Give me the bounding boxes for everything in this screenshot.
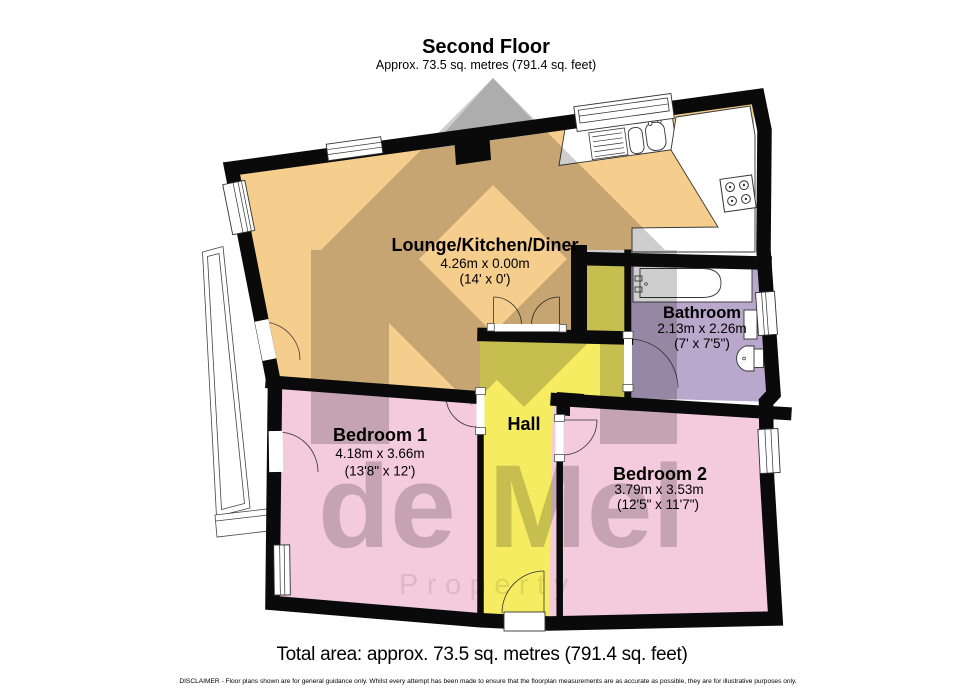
svg-text:Bedroom 2: Bedroom 2: [613, 464, 707, 484]
svg-text:4.26m x 0.00m: 4.26m x 0.00m: [440, 256, 529, 271]
svg-text:Hall: Hall: [507, 414, 540, 434]
svg-text:2.13m x 2.26m: 2.13m x 2.26m: [657, 321, 746, 336]
svg-text:DISCLAIMER - Floor plans sh: DISCLAIMER - Floor plans shown are for g…: [179, 678, 796, 685]
svg-text:(14' x 0'): (14' x 0'): [460, 272, 511, 287]
svg-text:Property: Property: [399, 569, 577, 601]
svg-text:(13'8" x 12'): (13'8" x 12'): [345, 464, 416, 479]
svg-text:Second Floor: Second Floor: [422, 36, 550, 58]
svg-text:(12'5" x 11'7"): (12'5" x 11'7"): [617, 497, 699, 512]
svg-text:4.18m x 3.66m: 4.18m x 3.66m: [335, 446, 424, 461]
svg-text:(7' x 7'5"): (7' x 7'5"): [674, 336, 730, 351]
svg-text:Total area: approx. 73.5 sq. m: Total area: approx. 73.5 sq. metres (791…: [276, 644, 687, 665]
svg-text:Bathroom: Bathroom: [663, 304, 741, 322]
svg-text:Approx. 73.5 sq. metres (791.4: Approx. 73.5 sq. metres (791.4 sq. feet): [376, 58, 596, 72]
svg-text:Bedroom 1: Bedroom 1: [333, 425, 427, 445]
svg-text:Lounge/Kitchen/Diner: Lounge/Kitchen/Diner: [391, 235, 578, 255]
svg-text:3.79m x 3.53m: 3.79m x 3.53m: [614, 482, 703, 497]
